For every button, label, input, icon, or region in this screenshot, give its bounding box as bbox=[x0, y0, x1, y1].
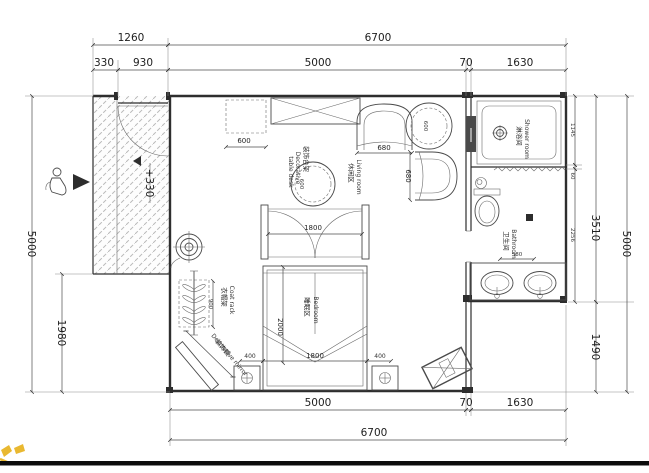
stool bbox=[406, 103, 452, 149]
dim-bed-1800: 1800 bbox=[306, 352, 324, 360]
partition-doors: 1800 bbox=[261, 205, 369, 259]
person-entry-icon bbox=[53, 168, 61, 176]
bedroom-label-en: Bedroom bbox=[312, 296, 319, 323]
entry-direction-arrow bbox=[73, 174, 90, 190]
bedroom-label-zh: 睡眠区 bbox=[303, 297, 311, 317]
deco-table-label-en1: Decorative bbox=[294, 152, 301, 185]
dim-right-5000: 5000 bbox=[620, 231, 632, 258]
floor-drain-symbol bbox=[171, 231, 205, 268]
entry-figure bbox=[46, 168, 90, 195]
dim-stool-600: 600 bbox=[422, 121, 428, 132]
shower-room-label-en: Shower room bbox=[523, 119, 530, 159]
coat-rack: 900 衣帽架 Coat rack bbox=[179, 271, 235, 335]
shower-room-label-zh: 淋浴间 bbox=[515, 126, 524, 146]
dim-cabinet-600: 600 bbox=[237, 137, 250, 145]
dim-left-5000: 5000 bbox=[25, 231, 37, 258]
deco-table-label-en2: table desk bbox=[287, 156, 294, 188]
cabinet bbox=[226, 100, 266, 133]
dim-bath-580: 580 bbox=[512, 252, 523, 258]
dim-top-1630: 1630 bbox=[507, 57, 534, 69]
door-jamb bbox=[114, 92, 118, 100]
living-area: 600 600 680 600 680 装饰台架 Decora bbox=[226, 98, 457, 206]
dim-top-330: 330 bbox=[94, 57, 114, 69]
bathroom-label-zh: 卫生间 bbox=[502, 231, 511, 251]
bottom-bar bbox=[0, 461, 649, 466]
level-label: +330 bbox=[143, 169, 155, 198]
dim-top-6700: 6700 bbox=[365, 32, 392, 44]
dim-right-1490: 1490 bbox=[589, 334, 601, 361]
console-cabinet bbox=[271, 98, 360, 124]
dim-right-1145: 1145 bbox=[569, 123, 575, 137]
living-room-label-en: Living room bbox=[355, 159, 362, 194]
entry-ramp: +330 bbox=[93, 96, 170, 274]
bedroom-area: 2000 400 1800 400 睡眠区 Bedroom bbox=[234, 266, 398, 390]
mirror-label-en: Decorative mirror bbox=[209, 333, 249, 378]
dim-bed-2000: 2000 bbox=[276, 318, 284, 336]
shower-curtain bbox=[494, 167, 565, 171]
dim-chair-680: 680 bbox=[377, 144, 390, 152]
dim-bottom-6700: 6700 bbox=[361, 427, 388, 439]
dim-top-930: 930 bbox=[133, 57, 153, 69]
dim-door-1800: 1800 bbox=[304, 224, 322, 232]
bathroom: 卫生间 Bathroom 580 bbox=[470, 178, 566, 301]
dim-top-5000: 5000 bbox=[305, 57, 332, 69]
dim-nightstand-left-400: 400 bbox=[244, 353, 256, 360]
ramp-hatch bbox=[93, 96, 170, 274]
watermark-fragment bbox=[0, 444, 25, 462]
floor-drain bbox=[526, 214, 533, 221]
dim-chair2-680: 680 bbox=[404, 169, 412, 182]
armchair-right bbox=[415, 152, 457, 200]
living-room-label-zh: 休闲区 bbox=[347, 163, 356, 183]
dim-right-2256: 2256 bbox=[569, 228, 575, 242]
dim-right-3510: 3510 bbox=[589, 215, 601, 242]
dim-right-60: 60 bbox=[569, 173, 575, 180]
coat-rack-label-zh: 衣帽架 bbox=[220, 287, 229, 307]
dim-nightstand-right-400: 400 bbox=[374, 353, 386, 360]
dim-top-1260: 1260 bbox=[118, 32, 145, 44]
dim-coatrack-900: 900 bbox=[207, 299, 213, 310]
floor-plan-drawing: +330 bbox=[0, 0, 649, 473]
nightstand-right bbox=[372, 366, 398, 390]
dim-left-1980: 1980 bbox=[55, 320, 67, 347]
deco-table-label-zh: 装饰台架 bbox=[302, 146, 311, 173]
decorative-mirror: 装饰镜 Decorative mirror bbox=[176, 331, 250, 390]
dim-bottom-70: 70 bbox=[459, 397, 472, 409]
dim-top-70: 70 bbox=[459, 57, 472, 69]
toilet bbox=[474, 189, 500, 226]
floor-plan-page: +330 bbox=[0, 0, 649, 473]
dim-bottom-5000: 5000 bbox=[305, 397, 332, 409]
coat-rack-label-en: Coat rack bbox=[228, 286, 235, 315]
equipment-box bbox=[422, 347, 472, 388]
dim-bottom-1630: 1630 bbox=[507, 397, 534, 409]
shower-room: 淋浴间 Shower room bbox=[466, 101, 565, 171]
vanity bbox=[470, 263, 566, 300]
